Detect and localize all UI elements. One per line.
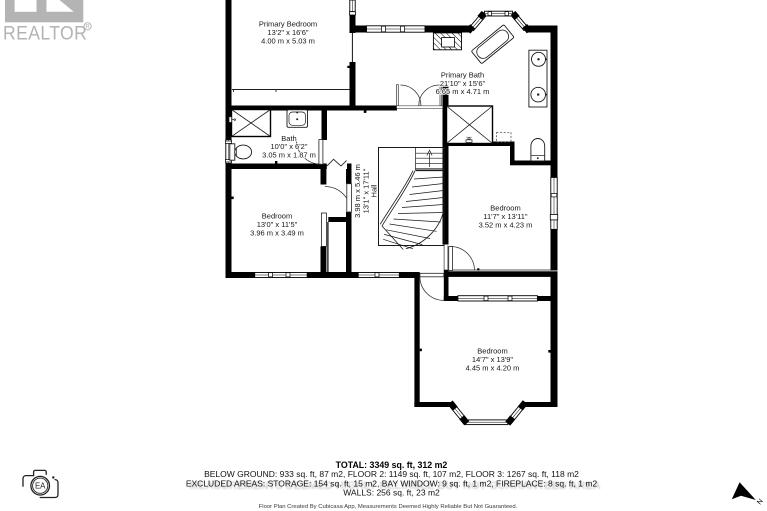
svg-text:Floor Plan Created By Cubicasa: Floor Plan Created By Cubicasa App, Meas…: [259, 504, 518, 510]
svg-text:3.05 m x 1.87 m: 3.05 m x 1.87 m: [262, 151, 316, 160]
svg-text:WALLS: 256 sq. ft, 23 m2: WALLS: 256 sq. ft, 23 m2: [343, 487, 440, 497]
svg-text:EA: EA: [35, 482, 46, 491]
svg-text:4.45 m x 4.20 m: 4.45 m x 4.20 m: [466, 363, 520, 372]
svg-text:3.98 m x 5.46 m: 3.98 m x 5.46 m: [353, 164, 362, 218]
svg-text:13'1" x 17'11": 13'1" x 17'11": [362, 168, 371, 213]
svg-text:6.65 m x 4.71 m: 6.65 m x 4.71 m: [436, 87, 490, 96]
svg-text:3.96 m x 3.49 m: 3.96 m x 3.49 m: [250, 228, 304, 237]
svg-text:4.00 m x 5.03 m: 4.00 m x 5.03 m: [261, 36, 315, 45]
svg-text:R: R: [85, 25, 90, 31]
svg-text:3.52 m x 4.23 m: 3.52 m x 4.23 m: [479, 220, 533, 229]
svg-text:REALTOR: REALTOR: [3, 22, 87, 44]
